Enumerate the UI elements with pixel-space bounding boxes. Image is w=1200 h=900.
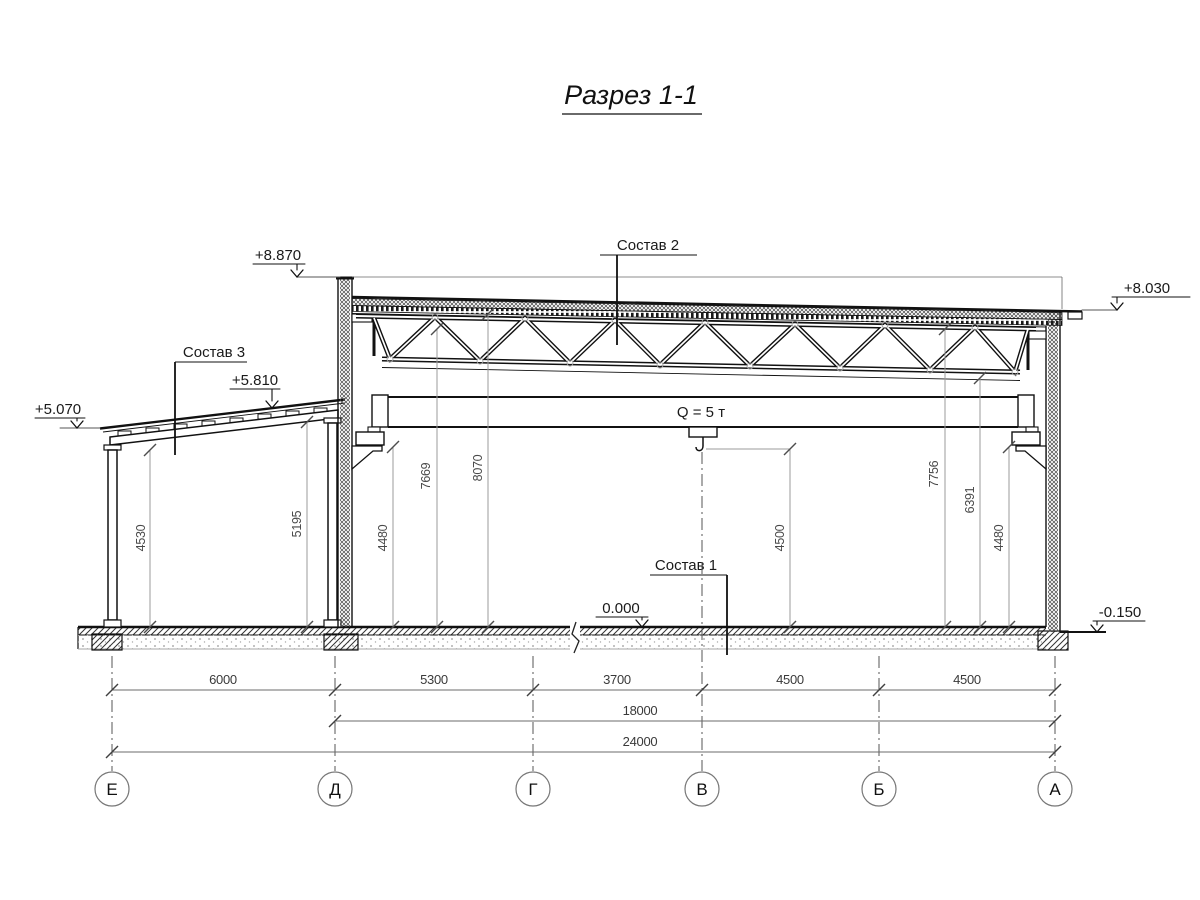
crane-hook bbox=[696, 437, 703, 451]
console-left bbox=[352, 446, 382, 469]
elevation-mark-0000: 0.000 bbox=[596, 600, 648, 627]
hdim-lines bbox=[112, 690, 1055, 752]
axis-label-d: Д bbox=[329, 780, 341, 799]
foundation-pad-a bbox=[1038, 631, 1068, 650]
crane-capacity-label: Q = 5 т bbox=[677, 404, 725, 421]
axis-label-b: Б bbox=[873, 780, 884, 799]
vdim-4530: 4530 bbox=[134, 524, 148, 551]
vdim-7669: 7669 bbox=[419, 462, 433, 489]
axis-bubbles: Е Д Г В Б А bbox=[95, 772, 1072, 806]
floor-slab bbox=[78, 622, 1106, 653]
axis-label-a: А bbox=[1049, 780, 1061, 799]
annex-col-left-base bbox=[104, 620, 121, 627]
elevation-mark-5070: +5.070 bbox=[35, 401, 100, 428]
crane-end-truck-left bbox=[372, 395, 388, 427]
callout-sostav3: Состав 3 bbox=[175, 344, 247, 455]
vdim-4500: 4500 bbox=[773, 524, 787, 551]
crane-trolley bbox=[689, 427, 717, 437]
vdim-5195: 5195 bbox=[290, 510, 304, 537]
runway-beam-right bbox=[1012, 432, 1040, 445]
drawing-sheet: Разрез 1-1 bbox=[0, 0, 1200, 900]
hdim-18000: 18000 bbox=[623, 703, 658, 718]
crane: Q = 5 т bbox=[352, 395, 1046, 469]
crane-rail-right bbox=[1026, 427, 1038, 432]
hdim-4500-ba: 4500 bbox=[953, 672, 981, 687]
callout-sostav2-label: Состав 2 bbox=[617, 237, 679, 254]
hdim-3700: 3700 bbox=[603, 672, 631, 687]
annex bbox=[100, 400, 345, 628]
vdim-7756: 7756 bbox=[927, 460, 941, 487]
elev-0000-label: 0.000 bbox=[602, 600, 640, 617]
elevation-mark-5810: +5.810 bbox=[230, 372, 280, 408]
elev-8870-label: +8.870 bbox=[255, 247, 301, 264]
elev-5070-label: +5.070 bbox=[35, 401, 81, 418]
roof-truss bbox=[352, 314, 1046, 381]
foundation-pad-d bbox=[324, 634, 358, 650]
callout-sostav3-label: Состав 3 bbox=[183, 344, 245, 361]
elevation-mark-m0150: -0.150 bbox=[1091, 604, 1145, 632]
vdim-8070: 8070 bbox=[471, 454, 485, 481]
vdim-6391: 6391 bbox=[963, 486, 977, 513]
console-right bbox=[1016, 446, 1046, 469]
crane-rail-left bbox=[368, 427, 380, 432]
callout-sostav1-label: Состав 1 bbox=[655, 557, 717, 574]
section-drawing: Разрез 1-1 bbox=[0, 0, 1200, 900]
vdim-4480-right: 4480 bbox=[992, 524, 1006, 551]
hdim-6000: 6000 bbox=[209, 672, 237, 687]
title-block: Разрез 1-1 bbox=[562, 80, 702, 114]
horizontal-dimensions: 6000 5300 3700 4500 4500 18000 24000 bbox=[106, 672, 1061, 758]
left-wall-hatch bbox=[340, 279, 350, 627]
elevation-mark-8030: +8.030 bbox=[1082, 280, 1190, 310]
runway-beam-left bbox=[356, 432, 384, 445]
floor-base-layer bbox=[78, 635, 1046, 649]
annex-col-left bbox=[108, 450, 117, 620]
cornice-end-cap bbox=[1068, 312, 1082, 319]
annex-col-right bbox=[328, 423, 337, 620]
vdim-4480-left: 4480 bbox=[376, 524, 390, 551]
axis-lines bbox=[112, 452, 1055, 771]
elev-m0150-label: -0.150 bbox=[1099, 604, 1142, 621]
axis-label-v: В bbox=[696, 780, 707, 799]
elev-8030-label: +8.030 bbox=[1124, 280, 1170, 297]
page-title: Разрез 1-1 bbox=[564, 80, 698, 110]
crane-end-truck-right bbox=[1018, 395, 1034, 427]
truss-bearing-right bbox=[1028, 331, 1046, 339]
axis-label-e: Е bbox=[106, 780, 117, 799]
hdim-4500-vb: 4500 bbox=[776, 672, 804, 687]
callout-sostav2: Состав 2 bbox=[600, 237, 697, 345]
elev-5810-label: +5.810 bbox=[232, 372, 278, 389]
foundation-pad-e bbox=[92, 634, 122, 650]
elevation-mark-8870: +8.870 bbox=[253, 247, 340, 277]
hdim-24000: 24000 bbox=[623, 734, 658, 749]
hdim-5300: 5300 bbox=[420, 672, 448, 687]
right-wall-hatch bbox=[1048, 311, 1058, 632]
axis-label-g: Г bbox=[528, 780, 537, 799]
